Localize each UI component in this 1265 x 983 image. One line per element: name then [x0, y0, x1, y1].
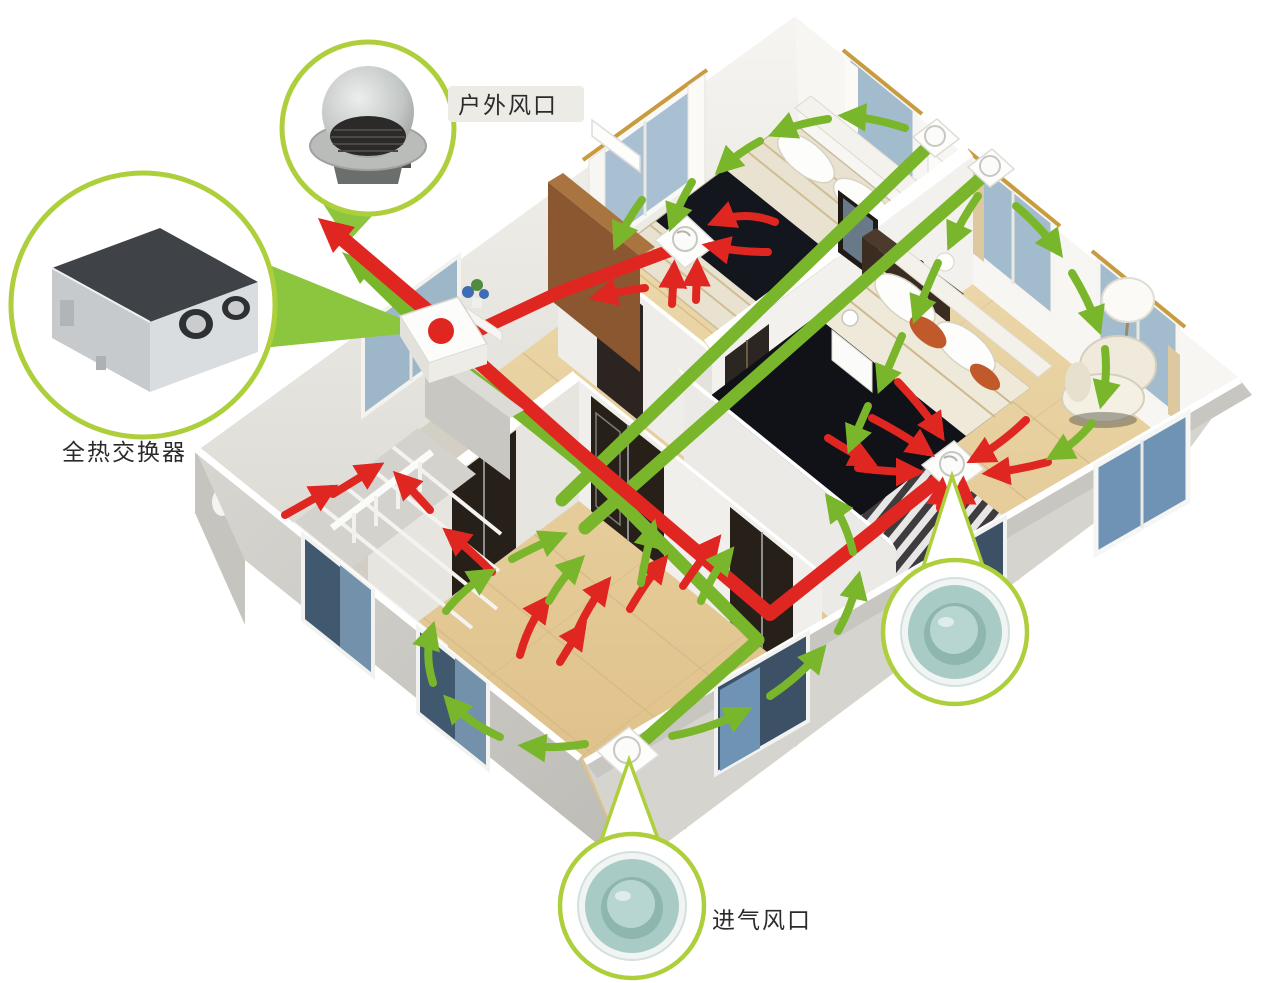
unit-port	[428, 318, 454, 344]
diagram-canvas: 户外风口 全热交换器	[0, 0, 1265, 983]
label-outdoor-vent: 户外风口	[458, 92, 558, 118]
teal-diffuser-image	[901, 578, 1009, 686]
label-heat-exchanger: 全热交换器	[62, 439, 187, 465]
teal-diffuser-image	[578, 852, 686, 960]
label-intake-vent: 进气风口	[712, 907, 812, 933]
ventilation-diagram: 户外风口 全热交换器	[0, 0, 1265, 983]
